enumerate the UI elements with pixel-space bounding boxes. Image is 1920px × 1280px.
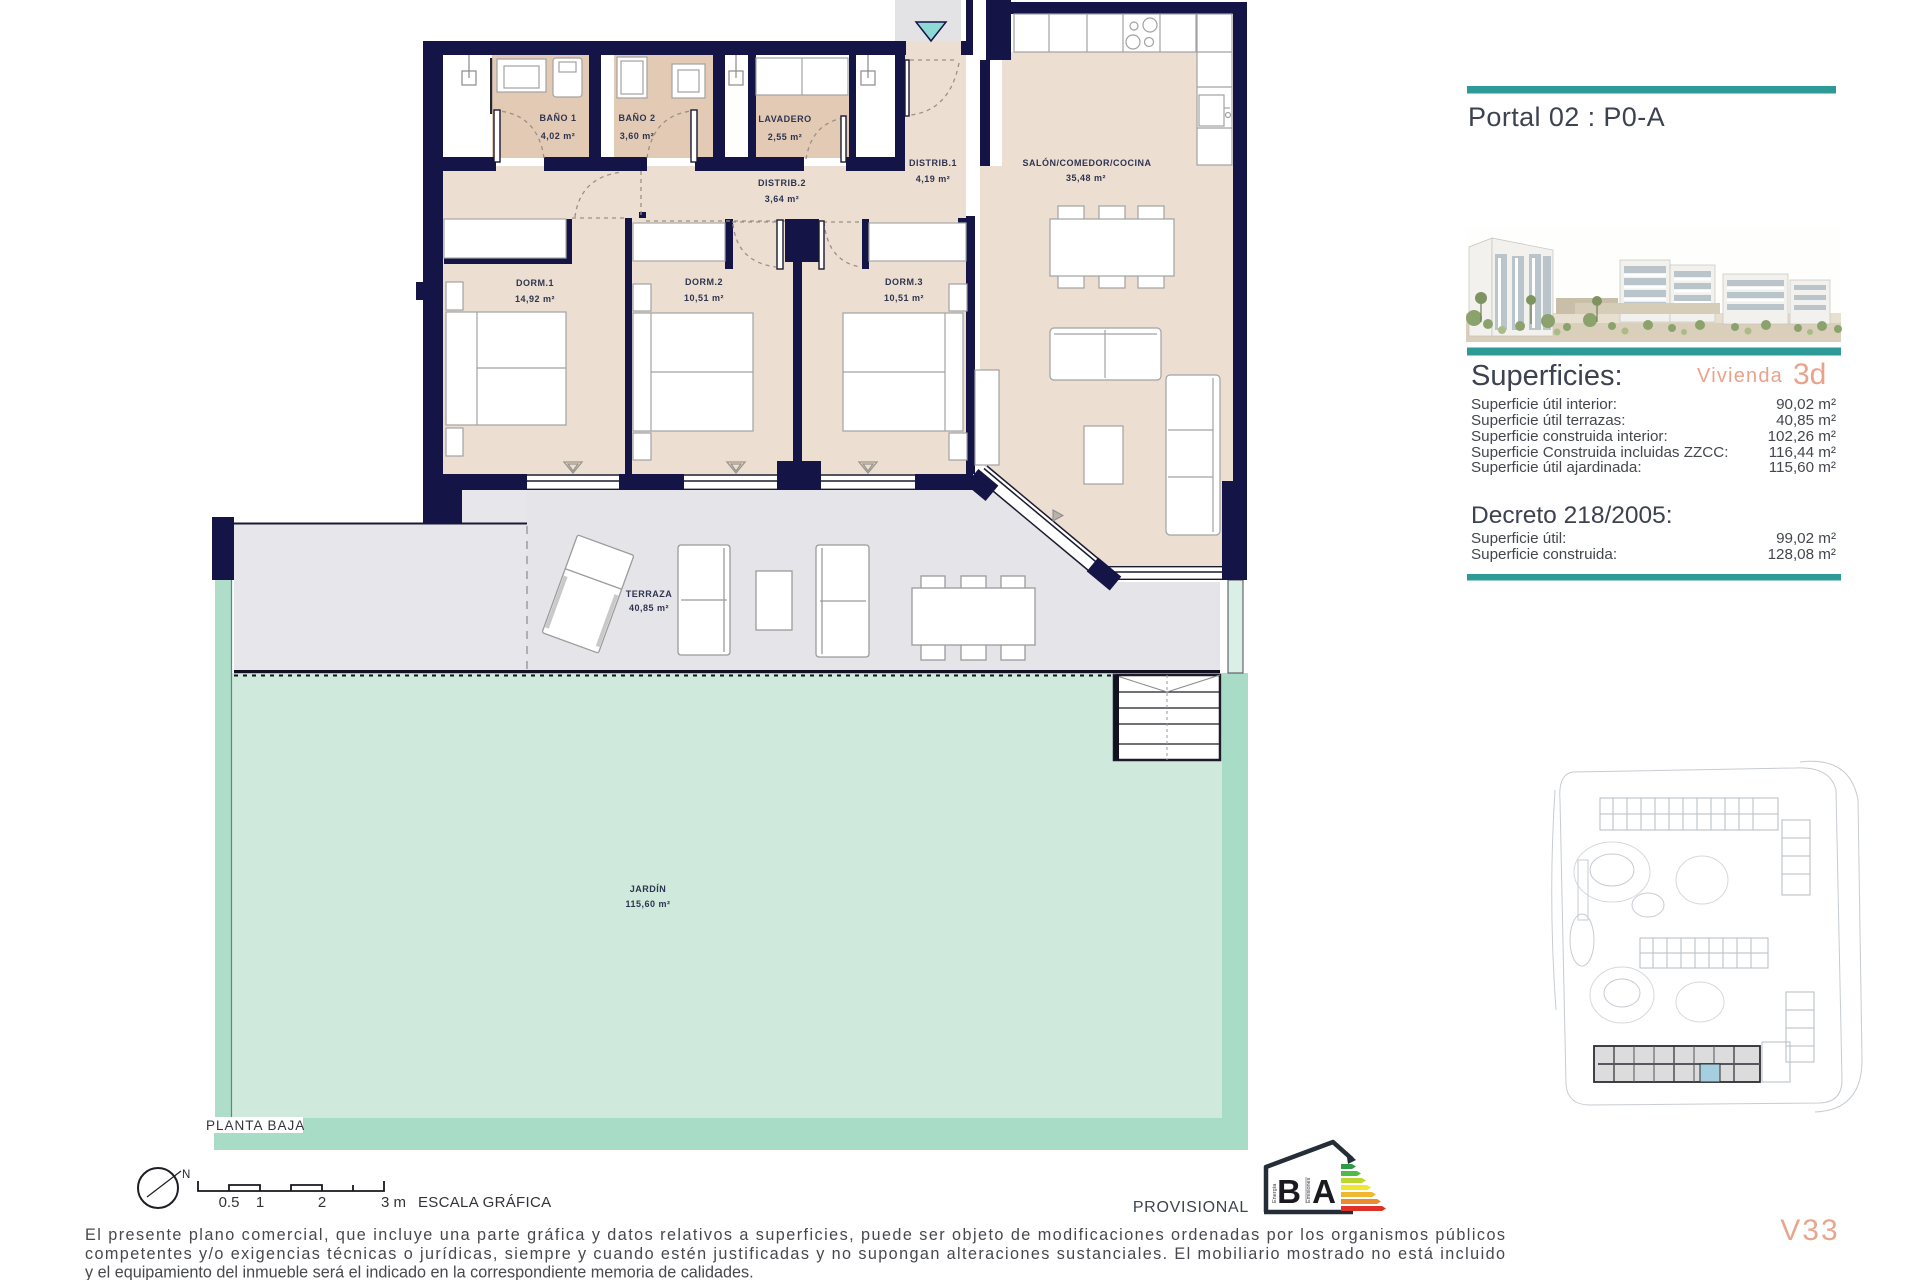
svg-text:Superficie útil terrazas:: Superficie útil terrazas: [1471,412,1625,429]
svg-text:35,48 m²: 35,48 m² [1066,173,1106,183]
svg-text:2: 2 [318,1194,326,1211]
svg-text:Superficie útil interior:: Superficie útil interior: [1471,396,1617,413]
svg-text:Portal 02 : P0-A: Portal 02 : P0-A [1468,102,1665,132]
svg-text:Superficie útil ajardinada:: Superficie útil ajardinada: [1471,459,1642,476]
svg-text:BAÑO 2: BAÑO 2 [618,113,655,123]
svg-text:Superficie construida:: Superficie construida: [1471,546,1617,563]
svg-text:3,60 m²: 3,60 m² [620,131,655,141]
svg-text:1: 1 [256,1194,264,1211]
svg-text:10,51 m²: 10,51 m² [684,293,724,303]
svg-text:DORM.2: DORM.2 [685,277,723,287]
svg-text:Superficie construida interior: Superficie construida interior: [1471,428,1668,445]
svg-text:115,60 m²: 115,60 m² [625,899,670,909]
svg-text:ESCALA GRÁFICA: ESCALA GRÁFICA [418,1194,551,1211]
svg-text:40,85 m²: 40,85 m² [1776,412,1836,429]
svg-text:Vivienda: Vivienda [1697,365,1783,387]
svg-text:4,19 m²: 4,19 m² [916,174,951,184]
svg-text:Decreto 218/2005:: Decreto 218/2005: [1471,502,1673,529]
svg-text:90,02 m²: 90,02 m² [1776,396,1836,413]
svg-text:BAÑO 1: BAÑO 1 [539,113,576,123]
svg-text:128,08 m²: 128,08 m² [1768,546,1836,563]
svg-text:B: B [1277,1173,1301,1210]
svg-text:DORM.3: DORM.3 [885,277,923,287]
svg-text:Energía: Energía [1272,1183,1278,1203]
svg-text:A: A [1312,1173,1336,1210]
svg-text:TERRAZA: TERRAZA [626,589,673,599]
svg-text:PLANTA BAJA: PLANTA BAJA [206,1118,305,1133]
svg-text:3 m: 3 m [381,1194,406,1211]
svg-text:JARDÍN: JARDÍN [630,884,667,894]
svg-text:115,60 m²: 115,60 m² [1769,459,1836,476]
svg-text:Superficie útil:: Superficie útil: [1471,530,1566,547]
svg-text:DORM.1: DORM.1 [516,278,554,288]
svg-text:PROVISIONAL: PROVISIONAL [1133,1199,1249,1216]
svg-text:y el equipamiento del inmueble: y el equipamiento del inmueble será el i… [85,1264,754,1280]
svg-text:3,64 m²: 3,64 m² [765,194,800,204]
svg-text:DISTRIB.2: DISTRIB.2 [758,178,806,188]
svg-text:102,26 m²: 102,26 m² [1768,428,1836,445]
svg-text:competentes y/o exigencias téc: competentes y/o exigencias técnicas o ju… [85,1245,1505,1263]
svg-text:Superficies:: Superficies: [1471,360,1623,392]
svg-text:3d: 3d [1793,358,1826,391]
svg-text:14,92 m²: 14,92 m² [515,294,555,304]
svg-text:40,85 m²: 40,85 m² [629,603,669,613]
svg-text:SALÓN/COMEDOR/COCINA: SALÓN/COMEDOR/COCINA [1023,157,1152,168]
svg-text:10,51 m²: 10,51 m² [884,293,924,303]
svg-text:99,02 m²: 99,02 m² [1776,530,1836,547]
svg-text:DISTRIB.1: DISTRIB.1 [909,158,957,168]
svg-text:V33: V33 [1780,1214,1839,1247]
svg-text:2,55 m²: 2,55 m² [768,132,803,142]
svg-text:4,02 m²: 4,02 m² [541,131,576,141]
svg-text:Emisiones: Emisiones [1306,1177,1312,1203]
svg-text:LAVADERO: LAVADERO [758,114,811,124]
svg-text:0.5: 0.5 [219,1194,240,1211]
svg-text:N: N [182,1169,190,1181]
svg-text:El presente plano comercial, q: El presente plano comercial, que incluye… [85,1226,1505,1244]
